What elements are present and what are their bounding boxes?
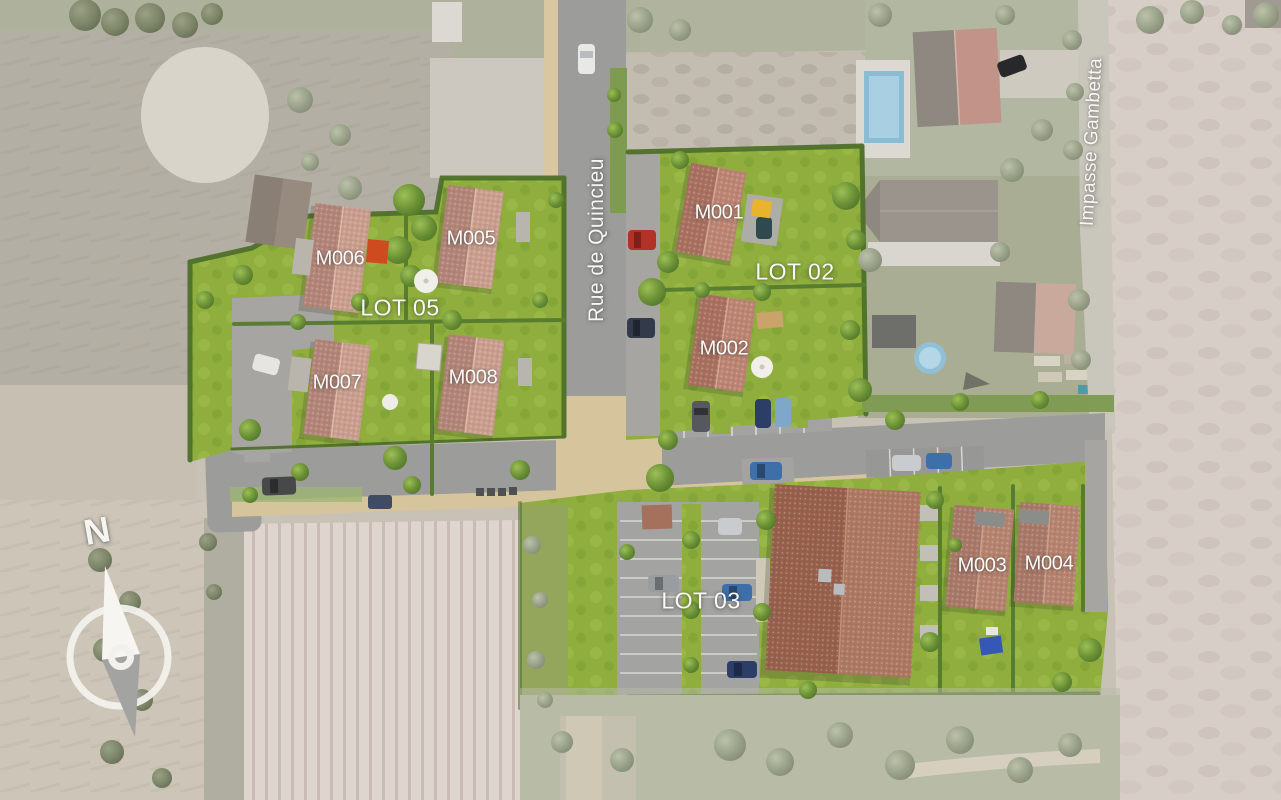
parasol-yellow [751,199,772,218]
building-lot03-collective [760,484,921,686]
existing-barn-roof [245,174,312,249]
car [727,661,757,678]
south-washed-band [520,688,1120,800]
car [628,230,656,250]
car [262,476,297,495]
roof-vent [818,569,832,583]
existing-house-roof [913,28,1002,127]
street-label-rue-de-quincieu: Rue de Quincieu [585,158,609,322]
bin-shelter [642,504,673,529]
lot-label-lot05[interactable]: LOT 05 [360,295,439,322]
car [718,518,742,535]
driveway [1085,440,1107,612]
building-label-m008[interactable]: M008 [449,367,498,390]
building-label-m005[interactable]: M005 [447,228,496,251]
parasol-red [366,239,389,264]
existing-house-roof [994,282,1076,355]
building-label-m001[interactable]: M001 [695,202,744,225]
building-label-m002[interactable]: M002 [700,338,749,361]
garden-shed [872,315,916,348]
building-label-m004[interactable]: M004 [1025,553,1074,576]
garage [288,356,312,392]
car [368,495,392,509]
car [578,44,595,74]
car [756,217,772,239]
picnic-table [756,311,783,329]
masterplan-image: Rue de Quincieu Impasse Gambetta M001 M0… [0,0,1281,800]
lot-label-lot02[interactable]: LOT 02 [755,259,834,286]
car [755,399,771,428]
car [750,462,782,480]
garden-table [986,627,998,635]
car [892,455,921,471]
building-label-m007[interactable]: M007 [313,372,362,395]
car [692,401,710,432]
parasol-white [382,394,398,410]
parasol-blue [979,636,1003,656]
car [627,318,655,338]
existing-house-roof [856,180,998,242]
building-label-m003[interactable]: M003 [958,555,1007,578]
lot-label-lot03[interactable]: LOT 03 [661,588,740,615]
building-label-m006[interactable]: M006 [316,248,365,271]
car [926,453,952,469]
car [775,398,791,427]
gazebo [416,343,442,371]
roof-vent [833,584,845,596]
